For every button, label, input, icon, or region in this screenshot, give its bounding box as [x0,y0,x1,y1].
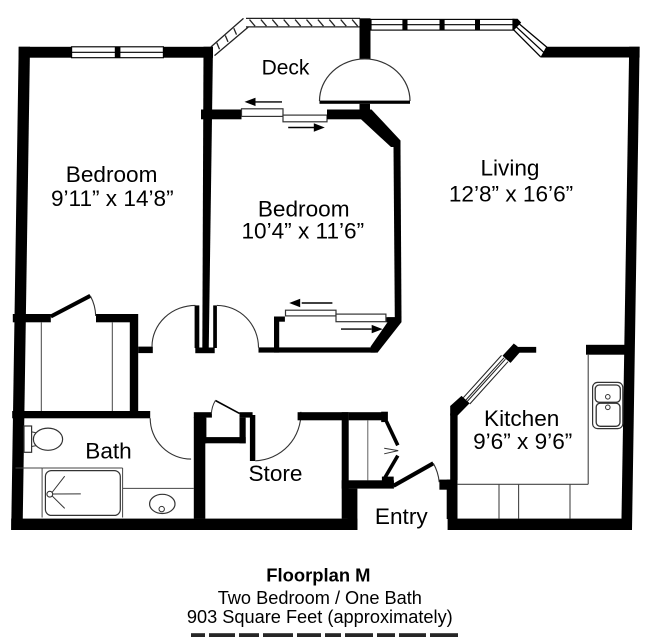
svg-text:12’8” x 16’6”: 12’8” x 16’6” [449,182,573,207]
svg-text:Bedroom: Bedroom [66,162,158,187]
svg-text:Store: Store [248,461,302,486]
svg-text:10’4” x 11’6”: 10’4” x 11’6” [241,219,364,244]
svg-text:Kitchen: Kitchen [484,406,559,431]
svg-text:9’6” x 9’6”: 9’6” x 9’6” [473,429,572,454]
svg-text:Two Bedroom / One Bath: Two Bedroom / One Bath [218,588,422,608]
svg-text:Floorplan M: Floorplan M [266,565,370,586]
svg-text:Deck: Deck [262,57,310,80]
svg-text:Bath: Bath [85,439,131,464]
svg-text:903 Square Feet (approximately: 903 Square Feet (approximately) [187,607,453,627]
svg-text:Living: Living [480,156,539,181]
svg-text:9’11” x 14’8”: 9’11” x 14’8” [51,186,174,211]
svg-text:Entry: Entry [375,504,428,529]
